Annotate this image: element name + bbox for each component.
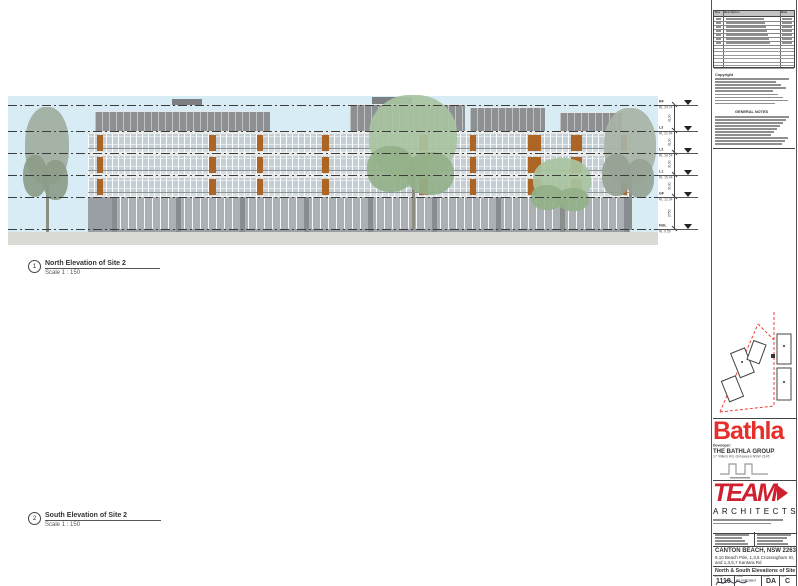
- text-line: [757, 537, 787, 539]
- text-line: [715, 97, 783, 99]
- level-line: [8, 105, 664, 106]
- table-row-line: [714, 45, 794, 46]
- tiny-text: 3100: [668, 183, 671, 190]
- orange-panel: [571, 135, 582, 151]
- level-marker-icon: [684, 126, 692, 131]
- table-row-line: [714, 48, 794, 49]
- tiny-text: GF: [659, 192, 664, 196]
- issue-code: DA: [766, 578, 776, 585]
- project-address: 9,10 Beach Pde, 1,3,5 Crossingham St, an…: [715, 555, 796, 565]
- orange-panel: [97, 135, 103, 151]
- text-line: [715, 128, 777, 130]
- notes-block: Copyright GENERAL NOTES: [713, 72, 795, 149]
- architect-block: TEAM ARCHITECTS: [713, 480, 797, 534]
- row-divider: [754, 532, 755, 546]
- orange-panel: [97, 157, 103, 173]
- table-row-line: [714, 55, 794, 56]
- text-line: [716, 18, 721, 20]
- orange-panel: [322, 157, 329, 173]
- text-line: [715, 81, 776, 83]
- ground-strip: [8, 232, 658, 245]
- drawing-number-badge: 2: [28, 512, 41, 525]
- tiny-text: 2750: [668, 210, 671, 217]
- key-plan: [713, 302, 795, 418]
- table-row-line: [714, 58, 794, 59]
- orange-panel: [470, 157, 476, 173]
- orange-panel: [470, 135, 476, 151]
- contact-row: [713, 532, 796, 547]
- orange-panel: [528, 135, 541, 151]
- text-line: [726, 38, 769, 40]
- tiny-text: NGL: [659, 224, 667, 228]
- text-line: [782, 22, 792, 24]
- text-line: [726, 22, 765, 24]
- level-marker-icon: [684, 148, 692, 153]
- text-line: [716, 30, 721, 32]
- dimension-line: [674, 105, 675, 229]
- level-marker-icon: [684, 224, 692, 229]
- text-line: [715, 540, 745, 542]
- drawing-label-north: 1 North Elevation of Site 2 Scale 1 : 15…: [28, 260, 160, 276]
- storefront-pier: [496, 197, 501, 232]
- project-city: CANTON BEACH, NSW 2263: [715, 548, 796, 554]
- orange-panel: [209, 157, 216, 173]
- text-line: [715, 134, 771, 136]
- orange-panel: [257, 157, 263, 173]
- level-line: [8, 229, 664, 230]
- tiny-text: RL 15.44: [659, 176, 673, 179]
- bathla-logo: Bathla: [713, 419, 797, 444]
- text-line: [726, 26, 766, 28]
- text-line: [782, 26, 792, 28]
- orange-panel: [209, 135, 216, 151]
- text-line: [726, 34, 768, 36]
- drawing-label-south: 2 South Elevation of Site 2 Scale 1 : 15…: [28, 512, 161, 528]
- text-line: [715, 94, 778, 96]
- text-line: [782, 30, 792, 32]
- general-notes-heading: GENERAL NOTES: [735, 110, 768, 114]
- copyright-heading: Copyright: [715, 73, 733, 77]
- storefront-pier: [176, 197, 181, 232]
- table-row-line: [714, 41, 794, 42]
- tiny-text: Rev: [715, 11, 720, 14]
- text-line: [715, 125, 780, 127]
- tree-canopy: [43, 160, 67, 200]
- penthouse: [470, 107, 545, 132]
- text-line: [726, 42, 770, 44]
- table-row-line: [714, 37, 794, 38]
- architects-wordmark: ARCHITECTS: [713, 507, 797, 516]
- text-line: [715, 116, 789, 118]
- drawing-scale: Scale 1 : 150: [45, 522, 161, 528]
- storefront-pier: [432, 197, 437, 232]
- text-line: [757, 543, 788, 545]
- drawing-title: North Elevation of Site 2: [45, 260, 160, 269]
- text-line: [716, 42, 721, 44]
- table-row-line: [714, 25, 794, 26]
- tiny-text: L1: [659, 170, 663, 174]
- text-line: [715, 143, 782, 145]
- text-line: [715, 140, 785, 142]
- table-row-line: [714, 51, 794, 52]
- orange-panel: [470, 179, 476, 195]
- text-line: [716, 22, 721, 24]
- storefront-pier: [240, 197, 245, 232]
- table-row-line: [714, 29, 794, 30]
- text-line: [715, 90, 773, 92]
- drawing-sheet: RFRL 24.743100L3RL 21.643100L2RL 18.5431…: [0, 0, 798, 586]
- tree-canopy: [626, 159, 655, 198]
- level-marker-icon: [684, 170, 692, 175]
- north-elevation-drawing: RFRL 24.743100L3RL 21.643100L2RL 18.5431…: [0, 0, 710, 300]
- drawing-number-badge: 1: [28, 260, 41, 273]
- tiny-text: RF: [659, 100, 664, 104]
- level-marker-icon: [684, 192, 692, 197]
- level-marker-icon: [684, 100, 692, 105]
- text-line: [782, 18, 792, 20]
- table-row-line: [714, 68, 794, 69]
- drawing-scale: Scale 1 : 150: [45, 270, 160, 276]
- text-line: [715, 122, 783, 124]
- tiny-text: Date: [781, 11, 787, 14]
- developer-block: Bathla Developer: THE BATHLA GROUP 17 Vi…: [713, 418, 797, 459]
- tiny-text: Description: [724, 11, 739, 14]
- level-line: [8, 153, 664, 154]
- text-line: [716, 26, 721, 28]
- revision-code: C: [785, 578, 790, 585]
- table-row-line: [714, 62, 794, 63]
- text-line: [715, 103, 775, 105]
- penthouse: [95, 111, 270, 132]
- level-line: [8, 197, 664, 198]
- profile-sketch: [718, 458, 780, 480]
- text-line: [757, 540, 783, 542]
- text-line: [716, 34, 721, 36]
- orange-panel: [97, 179, 103, 195]
- storefront-pier: [304, 197, 309, 232]
- tiny-text: RL 18.54: [659, 154, 673, 157]
- text-line: [715, 84, 781, 86]
- tiny-text: RL 24.74: [659, 106, 673, 109]
- text-line: [715, 534, 749, 536]
- text-line: [726, 18, 764, 20]
- orange-panel: [257, 135, 263, 151]
- text-line: [715, 543, 748, 545]
- orange-panel: [322, 179, 329, 195]
- tiny-text: RL 12.34: [659, 198, 673, 201]
- signature: [714, 577, 750, 586]
- table-row-line: [714, 65, 794, 66]
- orange-panel: [257, 179, 263, 195]
- tiny-text: RL 9.59: [659, 230, 671, 233]
- text-line: [715, 537, 742, 539]
- tree-canopy: [406, 152, 454, 195]
- revision-table-header: RevDescriptionDate: [714, 11, 794, 17]
- panel-left-border: [711, 0, 712, 586]
- storefront-pier: [368, 197, 373, 232]
- text-line: [715, 137, 788, 139]
- orange-panel: [322, 135, 329, 151]
- orange-panel: [209, 179, 216, 195]
- team-logo: TEAM: [713, 480, 776, 507]
- table-row-line: [714, 33, 794, 34]
- storefront-pier: [112, 197, 117, 232]
- team-logo-triangle-icon: [777, 485, 788, 501]
- text-line: [715, 87, 786, 89]
- tree-canopy: [557, 188, 589, 211]
- level-line: [8, 175, 664, 176]
- tiny-text: L2: [659, 148, 663, 152]
- tiny-text: 3100: [668, 139, 671, 146]
- table-row-line: [714, 21, 794, 22]
- tiny-text: L3: [659, 126, 663, 130]
- ground-wall: [88, 197, 112, 232]
- text-line: [726, 30, 767, 32]
- developer-label: Developer:: [713, 444, 755, 448]
- tiny-text: 3100: [668, 115, 671, 122]
- text-line: [782, 42, 792, 44]
- text-line: [782, 34, 792, 36]
- revision-table: RevDescriptionDate: [713, 10, 795, 68]
- project-row: CANTON BEACH, NSW 2263 9,10 Beach Pde, 1…: [713, 546, 796, 567]
- text-line: [715, 119, 786, 121]
- south-elevation-drawing: RFRL 24.743100L3RL 21.643100L2RL 18.5431…: [0, 300, 710, 586]
- sheet-title: North & South Elevations of Site 2: [715, 568, 796, 573]
- text-line: [782, 38, 792, 40]
- text-line: [715, 78, 789, 80]
- text-line: [715, 131, 774, 133]
- text-line: [716, 38, 721, 40]
- text-line: [715, 100, 788, 102]
- drawing-title: South Elevation of Site 2: [45, 512, 161, 521]
- tiny-text: RL 21.64: [659, 132, 673, 135]
- text-line: [757, 534, 791, 536]
- level-line: [8, 131, 664, 132]
- tiny-text: 3100: [668, 161, 671, 168]
